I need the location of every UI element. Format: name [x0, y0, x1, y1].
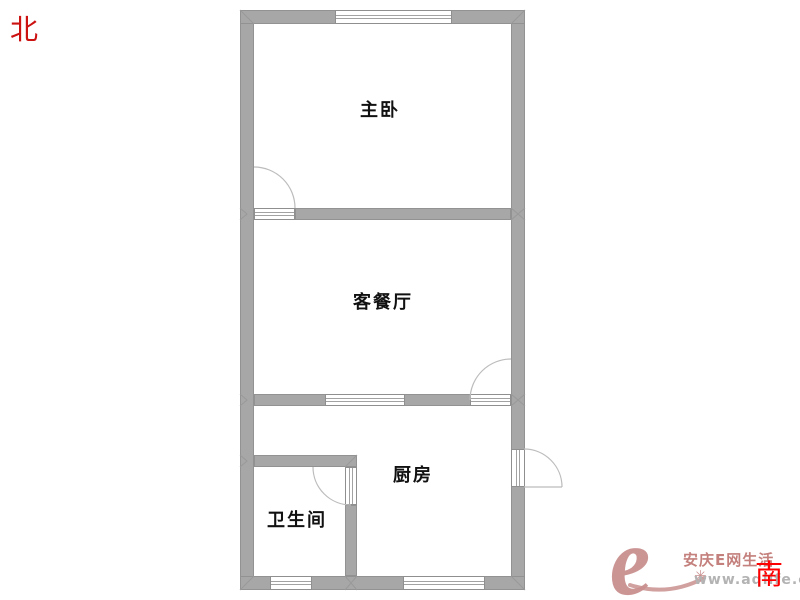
- watermark-site-url: www.aqlife.com: [694, 572, 800, 588]
- door-arc-master-bedroom: [254, 167, 295, 208]
- room-label-master-bedroom: 主卧: [360, 96, 400, 122]
- aqlife-logo-e-icon: e: [603, 512, 655, 600]
- window-kitchen-south: [403, 576, 485, 590]
- window-kitchen-inner: [325, 394, 405, 406]
- wall-left: [240, 10, 254, 590]
- wall-right: [511, 10, 525, 590]
- door-leaf-master-bedroom: [254, 208, 295, 220]
- wall-bedroom-divider: [295, 208, 511, 220]
- door-arc-kitchen-entry: [524, 449, 562, 487]
- floorplan-canvas: 北 主卧 客餐厅 厨房 卫生间 e ✳ 安庆E网生活 www.aqlife.co…: [0, 0, 800, 600]
- wall-bathroom-top: [254, 455, 357, 467]
- door-leaf-living-room: [470, 394, 511, 406]
- wall-bathroom-right: [345, 505, 357, 576]
- room-label-bathroom: 卫生间: [267, 506, 327, 532]
- door-leaf-kitchen-entry: [511, 449, 525, 487]
- room-label-kitchen: 厨房: [393, 461, 433, 487]
- compass-south-label: 南: [755, 562, 783, 590]
- window-bathroom: [270, 576, 312, 590]
- room-label-living-dining: 客餐厅: [353, 288, 413, 314]
- compass-north-label: 北: [10, 17, 38, 45]
- door-leaf-bathroom: [345, 467, 357, 505]
- window-master-bedroom: [335, 10, 452, 24]
